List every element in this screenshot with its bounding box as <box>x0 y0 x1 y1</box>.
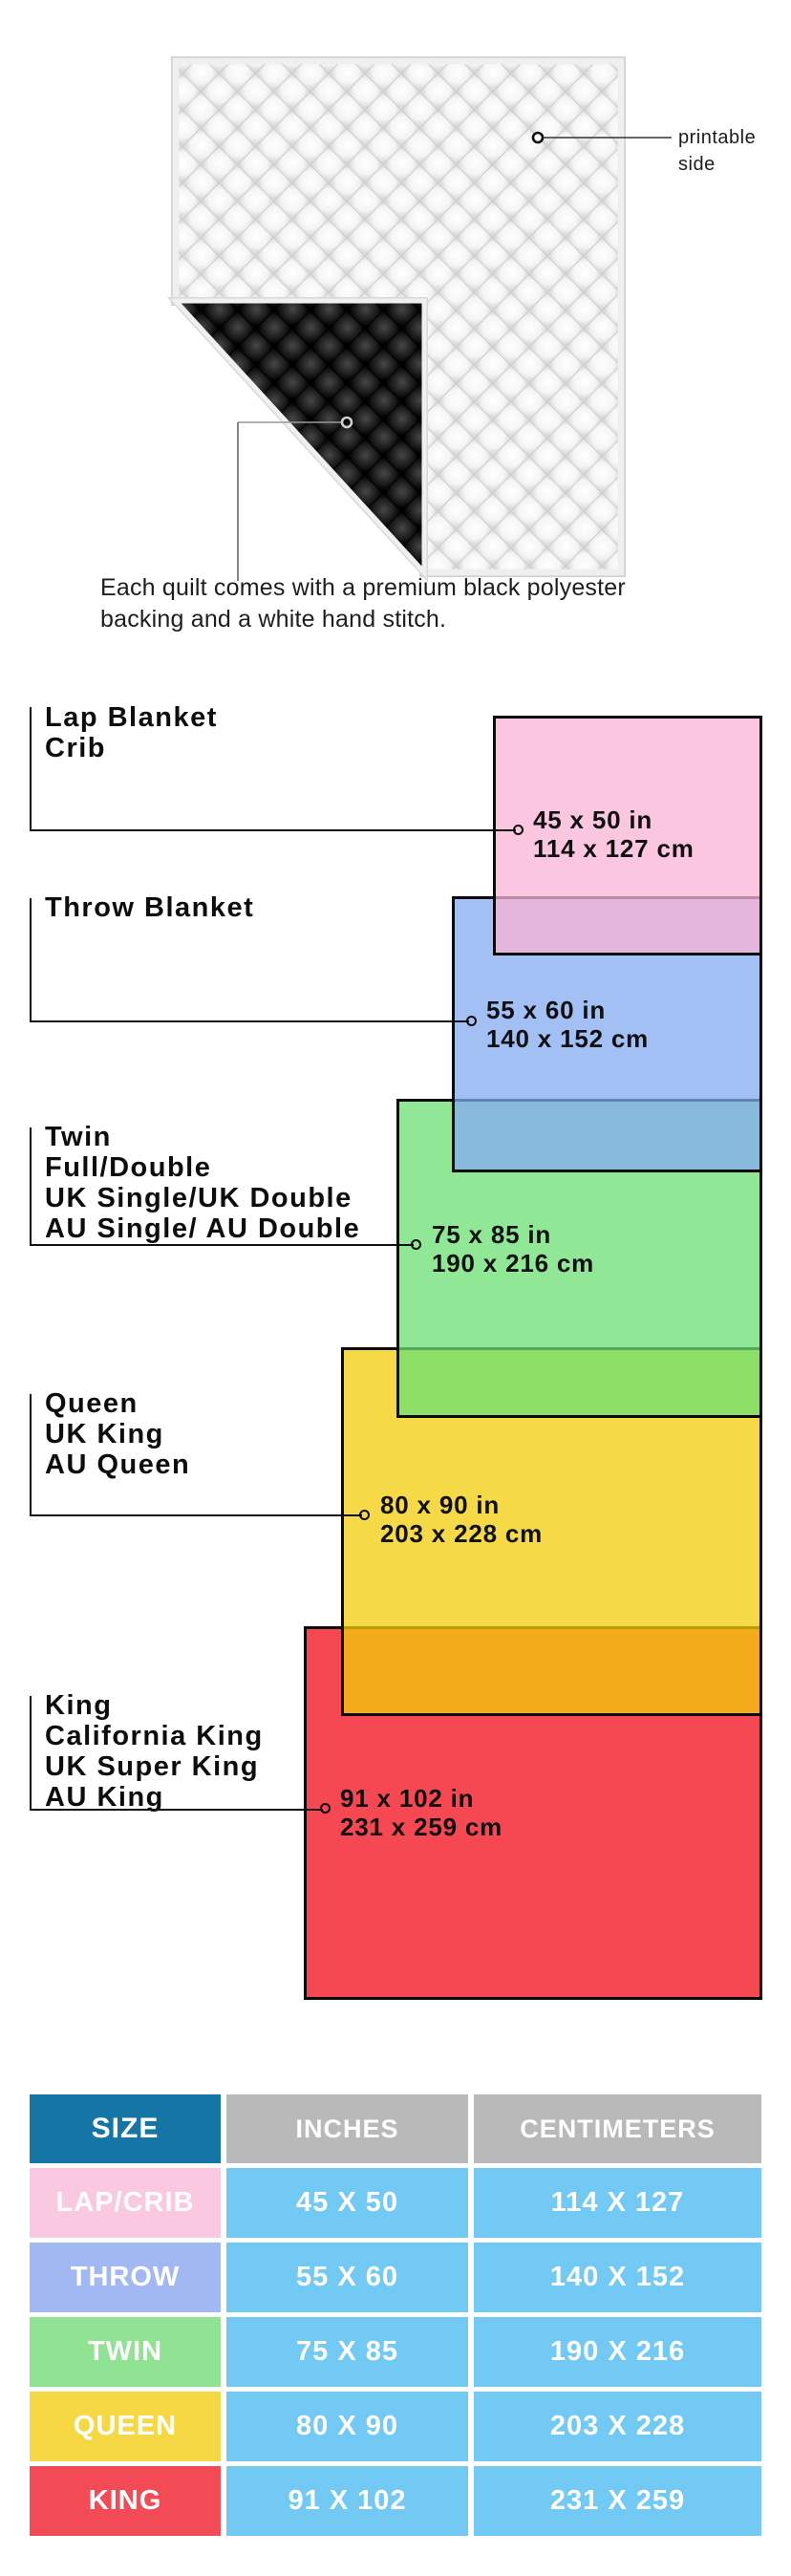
table-row-twin-inches: 75 X 85 <box>226 2317 468 2387</box>
printable-side-marker-icon <box>533 133 543 142</box>
connector-king-vertical <box>30 1696 32 1810</box>
table-row-king-size: KING <box>30 2466 221 2536</box>
size-text-queen: 80 x 90 in 203 x 228 cm <box>380 1491 543 1548</box>
connector-queen-vertical <box>30 1394 32 1515</box>
printable-side-label: printable side <box>678 124 756 178</box>
label-twin-line1: Twin <box>45 1122 112 1152</box>
table-header-centimeters: CENTIMETERS <box>474 2094 761 2163</box>
label-twin-line4: AU Single/ AU Double <box>45 1213 360 1244</box>
size-text-king-in: 91 x 102 in <box>340 1784 502 1813</box>
connector-lap-crib-vertical <box>30 707 32 830</box>
size-text-lap-crib-cm: 114 x 127 cm <box>533 834 695 863</box>
label-lap-crib-line2: Crib <box>45 733 106 763</box>
printable-side-label-line2: side <box>678 151 756 178</box>
connector-twin-horizontal <box>30 1244 414 1246</box>
size-text-king-cm: 231 x 259 cm <box>340 1813 502 1841</box>
marker-queen-icon <box>359 1510 370 1520</box>
table-row-king-centimeters: 231 X 259 <box>474 2466 761 2536</box>
connector-queen-horizontal <box>30 1514 362 1516</box>
label-twin-line3: UK Single/UK Double <box>45 1183 353 1213</box>
label-king-line1: King <box>45 1690 112 1721</box>
size-text-queen-cm: 203 x 228 cm <box>380 1519 543 1548</box>
backing-caption-line2: backing and a white hand stitch. <box>100 604 626 635</box>
size-text-throw-in: 55 x 60 in <box>486 996 649 1024</box>
quilt-size-infographic: printable side Each quilt comes with a p… <box>0 0 791 2576</box>
connector-throw-vertical <box>30 898 32 1021</box>
table-header-inches: INCHES <box>226 2094 468 2163</box>
connector-throw-horizontal <box>30 1020 469 1022</box>
marker-lap-crib-icon <box>513 825 524 835</box>
size-text-lap-crib-in: 45 x 50 in <box>533 805 695 834</box>
printable-side-label-line1: printable <box>678 124 756 151</box>
size-text-lap-crib: 45 x 50 in 114 x 127 cm <box>533 805 695 863</box>
table-row-queen-inches: 80 X 90 <box>226 2392 468 2461</box>
label-lap-crib-line1: Lap Blanket <box>45 702 218 733</box>
table-row-lap-crib-inches: 45 X 50 <box>226 2168 468 2238</box>
table-row-twin-size: TWIN <box>30 2317 221 2387</box>
backing-caption: Each quilt comes with a premium black po… <box>100 572 626 635</box>
quilt-illustration <box>0 0 791 669</box>
label-king-line3: UK Super King <box>45 1751 259 1782</box>
label-queen-line2: UK King <box>45 1419 164 1449</box>
marker-throw-icon <box>466 1016 477 1026</box>
table-row-throw-centimeters: 140 X 152 <box>474 2243 761 2312</box>
table-row-queen-centimeters: 203 X 228 <box>474 2392 761 2461</box>
size-text-king: 91 x 102 in 231 x 259 cm <box>340 1784 502 1841</box>
backing-caption-line1: Each quilt comes with a premium black po… <box>100 572 626 604</box>
label-king-line2: California King <box>45 1721 264 1751</box>
size-text-throw-cm: 140 x 152 cm <box>486 1024 649 1053</box>
size-text-twin: 75 x 85 in 190 x 216 cm <box>432 1220 594 1277</box>
table-row-lap-crib-size: LAP/CRIB <box>30 2168 221 2238</box>
size-text-queen-in: 80 x 90 in <box>380 1491 543 1519</box>
table-row-throw-size: THROW <box>30 2243 221 2312</box>
label-twin-line2: Full/Double <box>45 1152 211 1183</box>
size-text-throw: 55 x 60 in 140 x 152 cm <box>486 996 649 1053</box>
connector-lap-crib-horizontal <box>30 829 516 831</box>
connector-twin-vertical <box>30 1127 32 1245</box>
label-queen-line3: AU Queen <box>45 1449 190 1480</box>
size-text-twin-in: 75 x 85 in <box>432 1220 594 1249</box>
size-text-twin-cm: 190 x 216 cm <box>432 1249 594 1277</box>
label-throw: Throw Blanket <box>45 892 254 923</box>
table-header-size: SIZE <box>30 2094 221 2163</box>
connector-king-horizontal <box>30 1809 323 1811</box>
label-queen-line1: Queen <box>45 1388 139 1419</box>
quilt-black-backing-flap <box>176 301 424 572</box>
table-row-queen-size: QUEEN <box>30 2392 221 2461</box>
marker-twin-icon <box>411 1239 421 1250</box>
table-row-lap-crib-centimeters: 114 X 127 <box>474 2168 761 2238</box>
table-row-king-inches: 91 X 102 <box>226 2466 468 2536</box>
table-row-twin-centimeters: 190 X 216 <box>474 2317 761 2387</box>
marker-king-icon <box>320 1803 331 1814</box>
table-row-throw-inches: 55 X 60 <box>226 2243 468 2312</box>
